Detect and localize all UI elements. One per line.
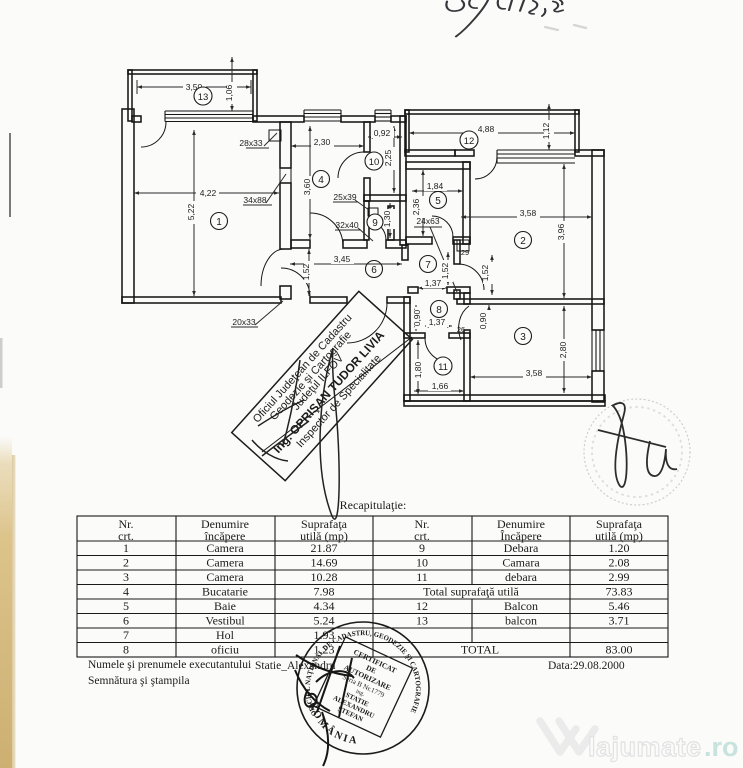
svg-text:1,06: 1,06 [224, 84, 234, 101]
svg-text:7: 7 [425, 260, 431, 271]
svg-text:2.99: 2.99 [609, 570, 630, 584]
svg-text:7.98: 7.98 [314, 585, 335, 599]
svg-text:10: 10 [369, 157, 380, 168]
svg-text:oficiu: oficiu [211, 643, 239, 657]
svg-text:.ro: .ro [704, 732, 739, 762]
svg-text:4,22: 4,22 [200, 188, 217, 198]
svg-text:11: 11 [438, 362, 448, 373]
svg-text:24x63: 24x63 [416, 216, 439, 226]
svg-text:lajumate: lajumate [588, 732, 702, 762]
svg-text:2.08: 2.08 [609, 556, 630, 570]
svg-text:Balcon: Balcon [504, 599, 538, 613]
svg-text:1,66: 1,66 [432, 381, 449, 391]
svg-text:3: 3 [520, 332, 526, 343]
svg-text:5: 5 [435, 196, 441, 207]
svg-text:12: 12 [416, 599, 428, 613]
svg-text:8: 8 [436, 305, 442, 316]
svg-text:9: 9 [419, 541, 425, 555]
svg-text:Camera: Camera [206, 556, 244, 570]
svg-text:7: 7 [123, 628, 129, 642]
svg-text:13: 13 [416, 614, 428, 628]
svg-text:2,80: 2,80 [558, 341, 568, 358]
svg-text:25x39: 25x39 [333, 192, 356, 202]
svg-text:Debara: Debara [504, 541, 539, 555]
svg-text:4,88: 4,88 [478, 124, 495, 134]
svg-text:Recapitulaţie:: Recapitulaţie: [340, 498, 407, 512]
svg-text:5.46: 5.46 [609, 599, 630, 613]
svg-text:Vestibul: Vestibul [205, 614, 245, 628]
svg-text:3,60: 3,60 [302, 178, 312, 195]
svg-text:Hol: Hol [216, 628, 235, 642]
svg-text:2,36: 2,36 [411, 198, 421, 215]
svg-text:14.69: 14.69 [311, 556, 338, 570]
svg-text:Camera: Camera [206, 570, 244, 584]
svg-text:5,22: 5,22 [186, 203, 196, 220]
svg-text:3,96: 3,96 [556, 223, 566, 240]
svg-text:Numele şi prenumele executantu: Numele şi prenumele executantului [88, 659, 251, 671]
svg-text:0,90: 0,90 [478, 312, 488, 329]
svg-text:4: 4 [123, 585, 129, 599]
svg-text:9: 9 [372, 218, 378, 229]
svg-text:2,25: 2,25 [383, 149, 393, 166]
svg-text:8: 8 [123, 643, 129, 657]
svg-text:3,45: 3,45 [334, 254, 351, 264]
svg-text:11: 11 [416, 570, 428, 584]
svg-text:2: 2 [123, 556, 129, 570]
svg-text:3: 3 [123, 570, 129, 584]
svg-text:1.20: 1.20 [609, 541, 630, 555]
svg-text:10: 10 [416, 556, 428, 570]
svg-text:balcon: balcon [505, 614, 537, 628]
svg-text:3.71: 3.71 [609, 614, 630, 628]
svg-text:1,12: 1,12 [541, 122, 551, 139]
svg-text:Data:29.08.2000: Data:29.08.2000 [548, 660, 625, 672]
svg-text:29: 29 [461, 248, 469, 257]
svg-text:Total suprafaţă utilă: Total suprafaţă utilă [423, 585, 519, 599]
svg-text:0,90: 0,90 [412, 309, 422, 326]
svg-text:32x40: 32x40 [335, 220, 358, 230]
svg-text:3,58: 3,58 [520, 208, 537, 218]
svg-text:2: 2 [520, 236, 526, 247]
svg-text:2,30: 2,30 [314, 137, 331, 147]
svg-text:10.28: 10.28 [311, 570, 338, 584]
svg-text:1: 1 [216, 217, 222, 228]
svg-text:6: 6 [371, 265, 377, 276]
svg-text:4: 4 [318, 175, 324, 186]
svg-text:1,52: 1,52 [440, 262, 450, 279]
svg-text:Camara: Camara [502, 556, 540, 570]
svg-text:1,37: 1,37 [425, 278, 442, 288]
svg-text:Semnătura şi ştampila: Semnătura şi ştampila [88, 675, 190, 687]
svg-text:26: 26 [457, 325, 465, 334]
svg-text:5: 5 [123, 599, 129, 613]
svg-text:1: 1 [123, 541, 129, 555]
svg-text:1,52: 1,52 [301, 263, 311, 280]
svg-text:4.34: 4.34 [314, 599, 335, 613]
svg-text:34x88: 34x88 [243, 195, 266, 205]
svg-text:1,37: 1,37 [429, 317, 446, 327]
svg-text:debara: debara [505, 570, 538, 584]
svg-text:13: 13 [198, 92, 209, 103]
svg-text:Camera: Camera [206, 541, 244, 555]
svg-text:6: 6 [123, 614, 129, 628]
svg-text:Bucatarie: Bucatarie [202, 585, 248, 599]
svg-text:3,58: 3,58 [526, 368, 543, 378]
svg-text:0,92: 0,92 [374, 128, 391, 138]
svg-text:Baie: Baie [214, 599, 236, 613]
svg-text:5.24: 5.24 [314, 614, 335, 628]
svg-text:1,30: 1,30 [382, 210, 392, 227]
svg-text:1,52: 1,52 [480, 264, 490, 281]
svg-text:83.00: 83.00 [606, 643, 633, 657]
svg-text:1,80: 1,80 [413, 361, 423, 378]
svg-text:20x33: 20x33 [232, 317, 255, 327]
svg-text:1,84: 1,84 [427, 181, 444, 191]
svg-text:73.83: 73.83 [606, 585, 633, 599]
svg-text:28x33: 28x33 [239, 138, 262, 148]
svg-text:21.87: 21.87 [311, 541, 338, 555]
svg-text:12: 12 [464, 136, 475, 147]
svg-text:TOTAL: TOTAL [461, 643, 499, 657]
